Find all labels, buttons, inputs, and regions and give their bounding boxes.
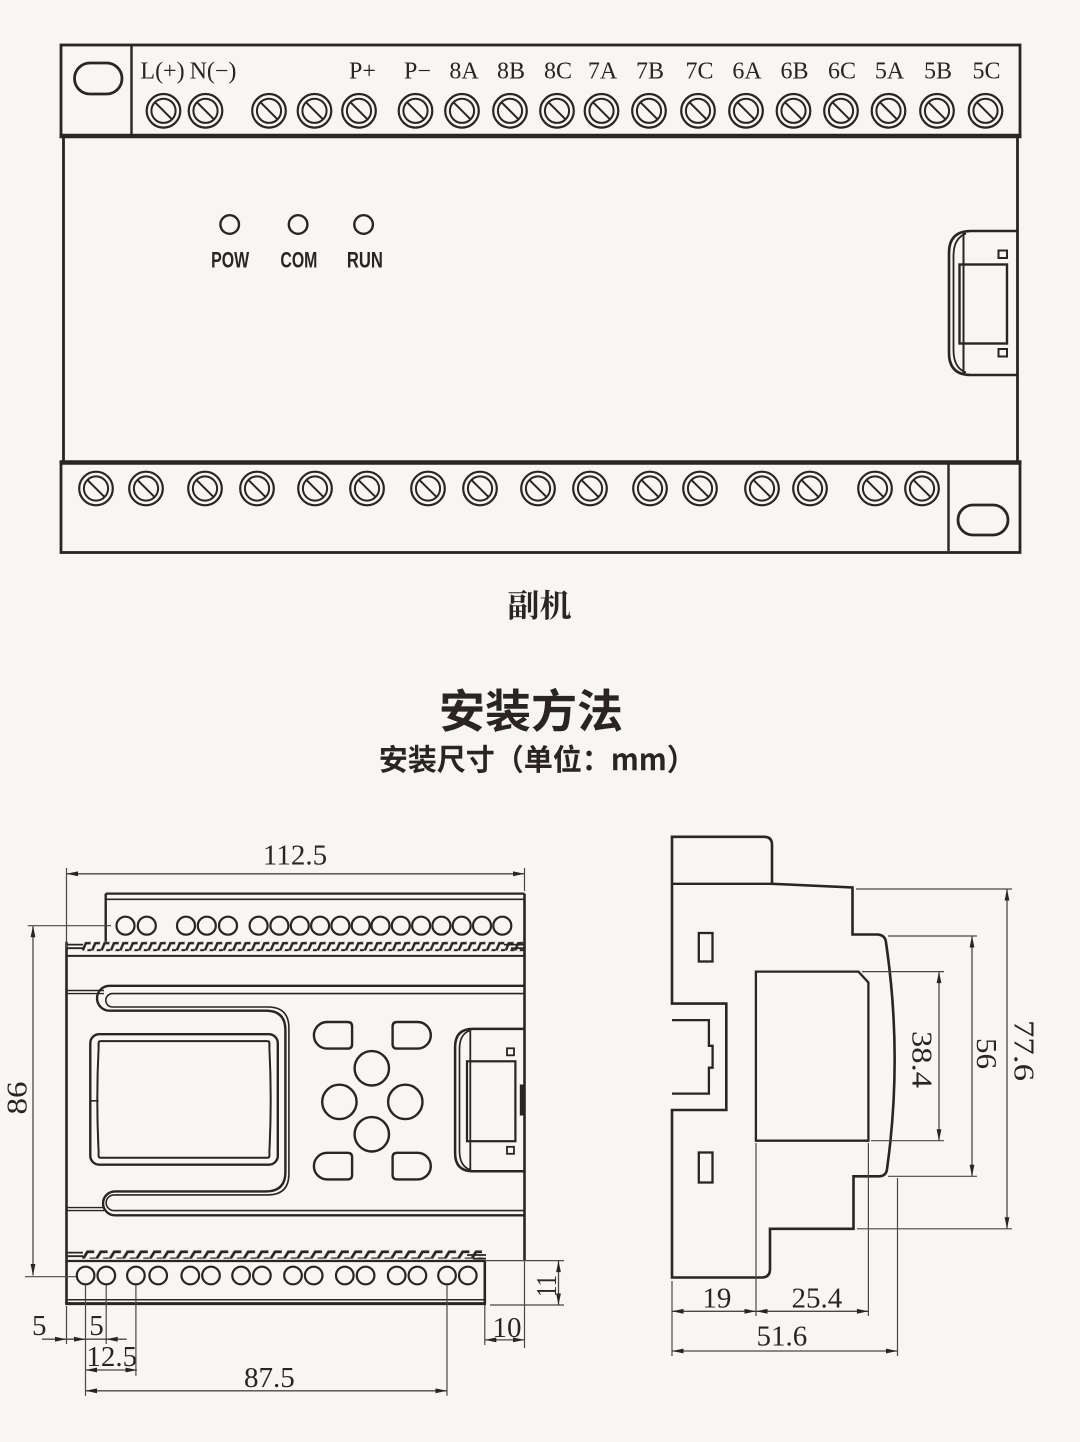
svg-text:38.4: 38.4 (906, 1031, 938, 1089)
svg-text:51.6: 51.6 (757, 1321, 808, 1353)
svg-text:19: 19 (702, 1283, 731, 1315)
svg-text:12.5: 12.5 (86, 1341, 137, 1373)
svg-text:112.5: 112.5 (263, 840, 327, 872)
svg-text:N(−): N(−) (190, 59, 237, 85)
svg-text:POW: POW (211, 248, 249, 273)
svg-text:6B: 6B (780, 59, 808, 85)
svg-text:7C: 7C (685, 59, 713, 85)
svg-text:8C: 8C (544, 59, 572, 85)
svg-text:5: 5 (32, 1310, 47, 1342)
svg-text:5C: 5C (972, 59, 1000, 85)
svg-text:8B: 8B (497, 59, 525, 85)
svg-text:8A: 8A (449, 59, 479, 85)
svg-text:86: 86 (2, 1082, 34, 1115)
svg-text:5A: 5A (875, 59, 905, 85)
svg-text:P−: P− (404, 59, 431, 85)
svg-text:87.5: 87.5 (244, 1362, 295, 1394)
svg-text:5B: 5B (924, 59, 952, 85)
svg-text:P+: P+ (349, 59, 376, 85)
svg-text:5: 5 (89, 1310, 104, 1342)
svg-text:56: 56 (970, 1038, 1002, 1069)
svg-text:7B: 7B (636, 59, 664, 85)
svg-text:77.6: 77.6 (1008, 1020, 1040, 1081)
svg-text:6A: 6A (732, 59, 762, 85)
svg-text:RUN: RUN (347, 248, 383, 273)
svg-text:25.4: 25.4 (792, 1283, 843, 1315)
svg-text:7A: 7A (588, 59, 618, 85)
svg-text:COM: COM (280, 248, 317, 273)
svg-text:6C: 6C (828, 59, 856, 85)
svg-text:L(+): L(+) (140, 59, 184, 85)
